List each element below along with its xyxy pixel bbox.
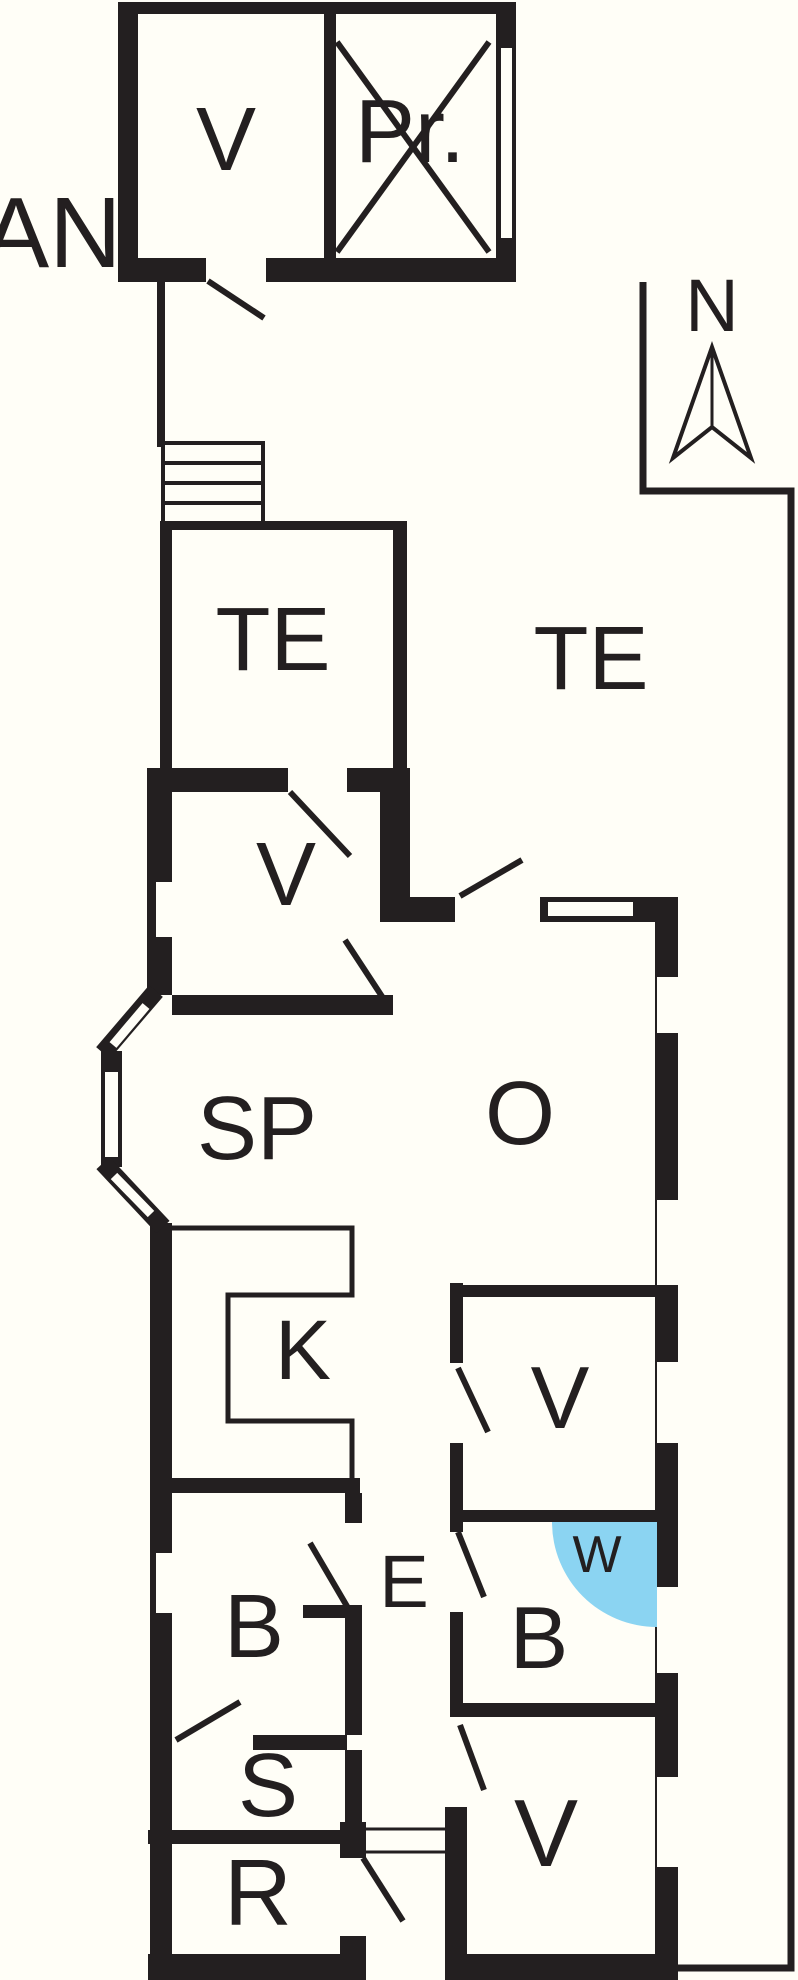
room-label-bedroom-bottom: V	[514, 1786, 578, 1882]
windows	[156, 882, 678, 1867]
north-arrow-icon	[673, 347, 751, 458]
room-label-annex-pr: Pr.	[355, 87, 465, 177]
room-label-living-sp: SP	[197, 1084, 317, 1174]
room-label-bedroom-mid: V	[531, 1354, 590, 1442]
room-label-kitchen: K	[275, 1308, 331, 1392]
bay-window	[101, 991, 163, 1227]
room-label-lounge-o: O	[485, 1069, 555, 1159]
floor-plan: AN V Pr. N TE TE V SP O K V W E B B S R …	[0, 0, 798, 1980]
compass-label: N	[685, 269, 738, 343]
room-label-shower-w: W	[572, 1529, 621, 1581]
room-label-terrace-small: TE	[215, 595, 330, 685]
room-label-bath-right: B	[510, 1594, 569, 1682]
room-label-sauna-s: S	[238, 1741, 298, 1831]
room-label-bath-left: B	[224, 1582, 284, 1672]
threshold-lines	[362, 1829, 445, 1852]
room-label-corridor-e: E	[379, 1545, 428, 1619]
room-label-hall: V	[256, 830, 316, 920]
room-label-annex: AN	[0, 183, 121, 283]
room-label-utility-r: R	[224, 1846, 292, 1940]
annex-window	[501, 48, 512, 238]
floor-plan-drawing	[0, 0, 798, 1980]
room-label-annex-v: V	[196, 95, 256, 185]
stairs-icon	[163, 443, 263, 523]
room-label-terrace-large: TE	[533, 614, 648, 704]
